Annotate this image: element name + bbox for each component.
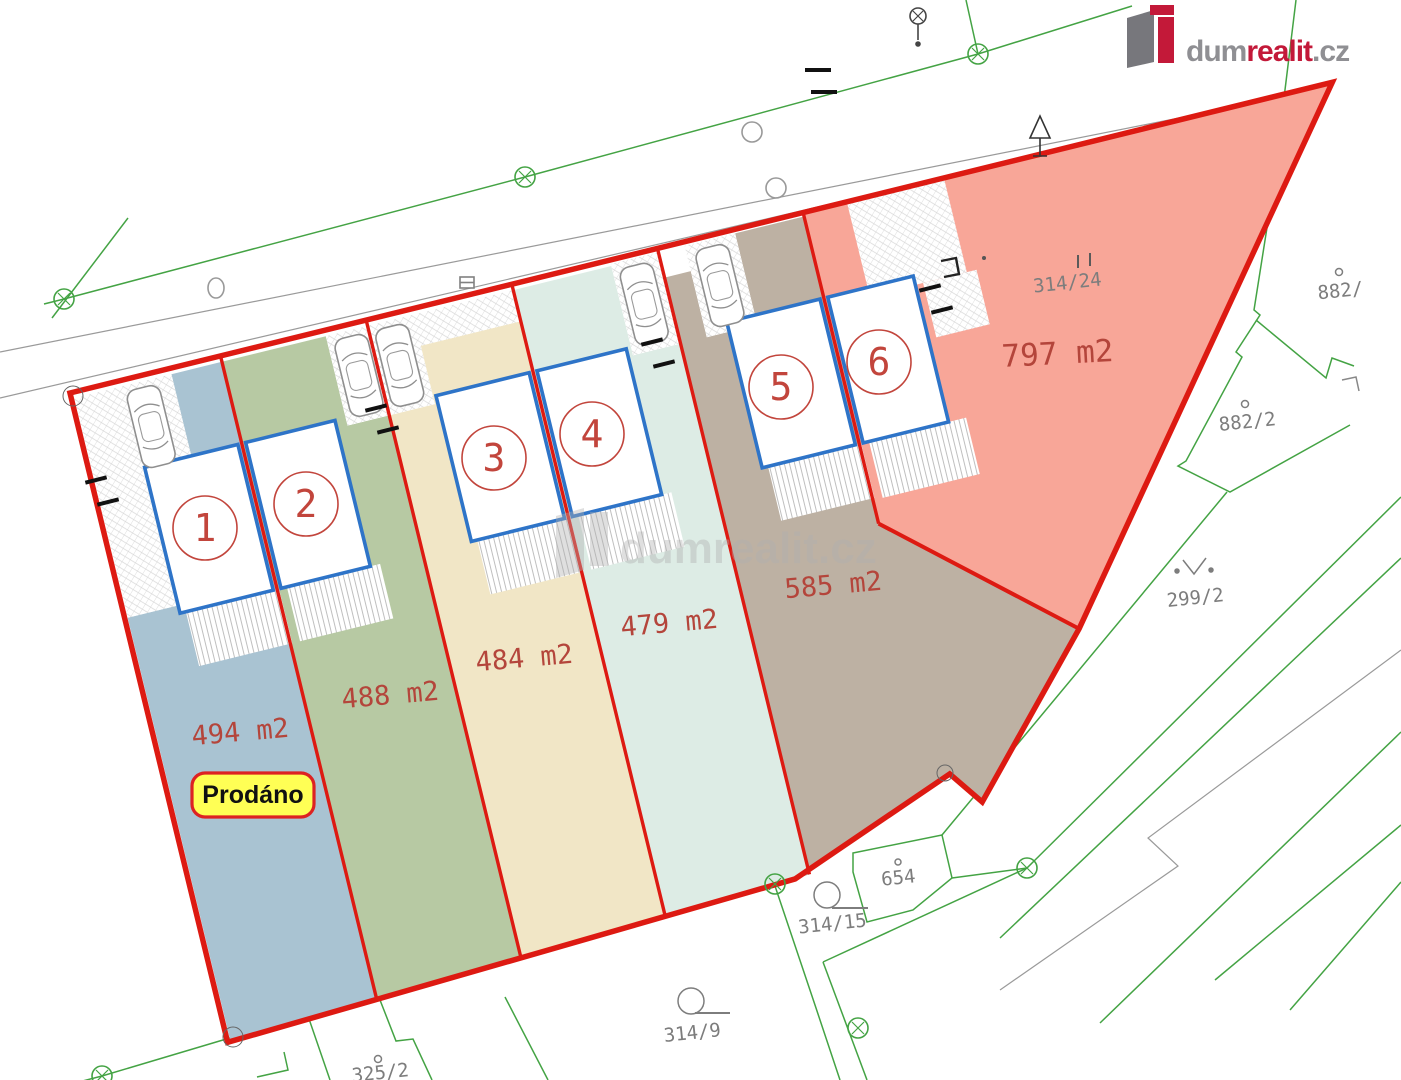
plot-number-4-label: 4 [581, 412, 604, 456]
gate-bracket-icon [1342, 377, 1359, 391]
brand-logo-bar [1158, 17, 1174, 63]
plot-6-area-label: 797 m2 [1001, 333, 1115, 375]
point-symbol-icon [1336, 269, 1343, 276]
point-symbol-icon [895, 859, 901, 865]
site-plan-canvas: 1 2 3 4 5 6 494 m2 488 m2 484 m2 479 m2 … [0, 0, 1401, 1080]
brand-logo: dumrealit.cz [1127, 5, 1349, 68]
parcel-299-2-label: 299/2 [1166, 584, 1225, 612]
prodano-badge-label: Prodáno [202, 781, 303, 809]
prodano-badge: Prodáno [192, 773, 314, 817]
parcel-882-label: 882/ [1316, 278, 1364, 305]
point-symbol-icon [1242, 401, 1249, 408]
manhole-icon [208, 278, 224, 298]
manhole-icon [766, 178, 786, 198]
parcel-654-label: 654 [880, 865, 916, 890]
point-dot-icon [982, 256, 986, 260]
brand-logo-text-realit: realit [1246, 35, 1313, 68]
parcel-882-2-label: 882/2 [1218, 408, 1277, 436]
brand-logo-cap [1150, 5, 1174, 15]
well-symbol-icon [678, 988, 730, 1014]
lamp-icon [910, 8, 926, 47]
plot-number-3-label: 3 [483, 436, 506, 480]
plot-number-6-label: 6 [868, 340, 891, 384]
dimension-tick-icon [811, 90, 837, 94]
watermark-logo-icon [556, 508, 584, 578]
brand-logo-cube-icon [1127, 10, 1154, 68]
dimension-tick-icon [805, 68, 831, 72]
brand-logo-text-cz: .cz [1312, 35, 1349, 68]
watermark-logo-bar [590, 512, 608, 566]
brand-logo-text: dumrealit.cz [1186, 35, 1349, 68]
shaft-symbol-icon [460, 277, 474, 288]
plot-number-1-label: 1 [194, 506, 217, 550]
meadow-symbol-icon [1175, 558, 1213, 574]
parcel-314-15-label: 314/15 [797, 910, 868, 939]
manhole-icon [742, 122, 762, 142]
site-plan-map: 1 2 3 4 5 6 494 m2 488 m2 484 m2 479 m2 … [0, 0, 1401, 1080]
plot-number-2-label: 2 [295, 482, 318, 526]
parcel-314-9-label: 314/9 [663, 1019, 722, 1047]
brand-logo-text-dum: dum [1186, 35, 1246, 68]
plot-number-5-label: 5 [770, 365, 793, 409]
watermark-text: dumrealit.cz [620, 524, 877, 573]
